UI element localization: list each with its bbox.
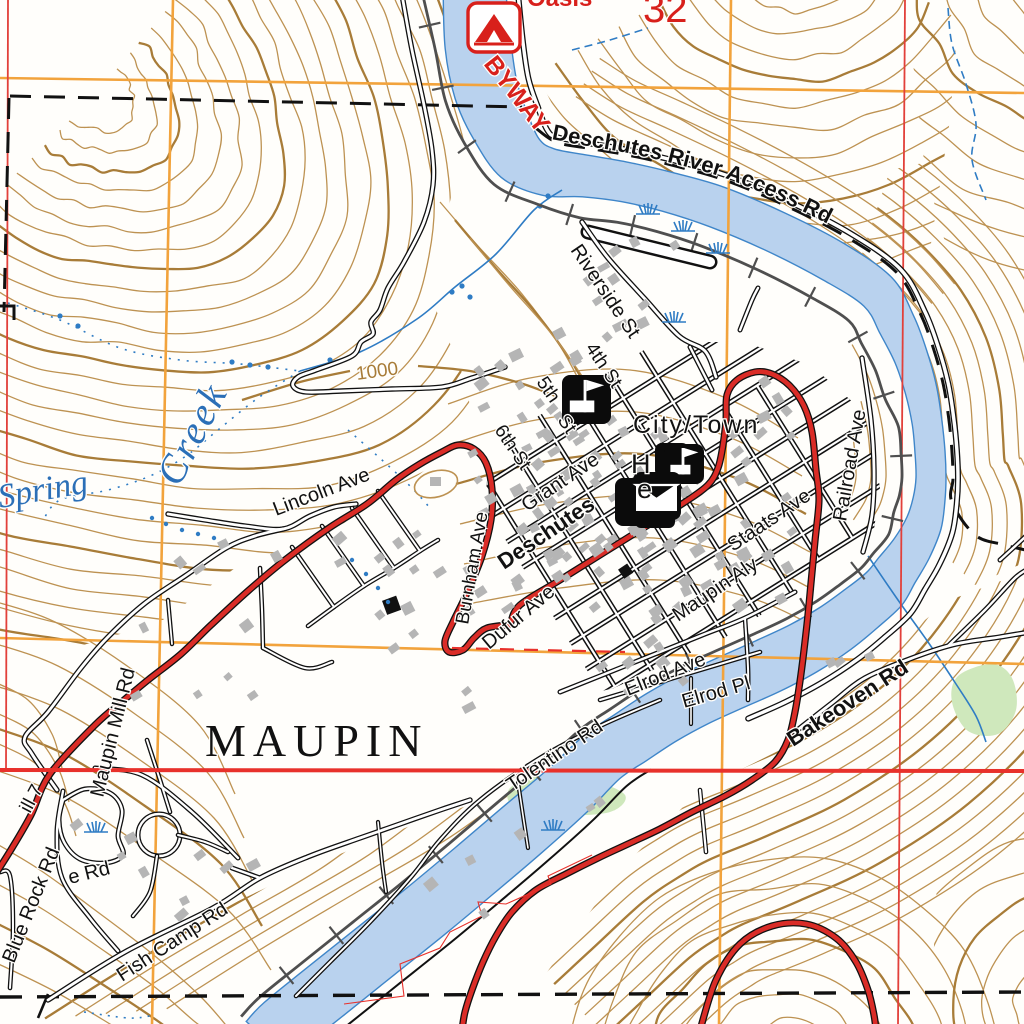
svg-text:Oasis: Oasis — [527, 0, 592, 12]
svg-text:City/Town: City/Town — [633, 411, 759, 439]
svg-text:MAUPIN: MAUPIN — [205, 715, 428, 766]
svg-text:32: 32 — [643, 0, 688, 31]
svg-text:e: e — [637, 474, 652, 504]
